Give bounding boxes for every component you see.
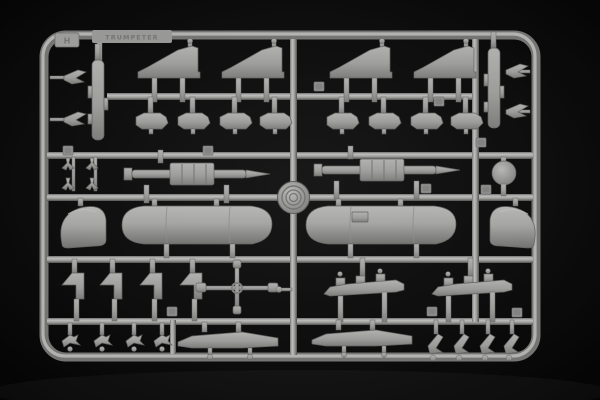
sprue-photo: TRUMPETER H — [0, 0, 600, 400]
sprue-photo-svg: TRUMPETER H — [0, 0, 600, 400]
vignette-overlay — [0, 0, 600, 400]
